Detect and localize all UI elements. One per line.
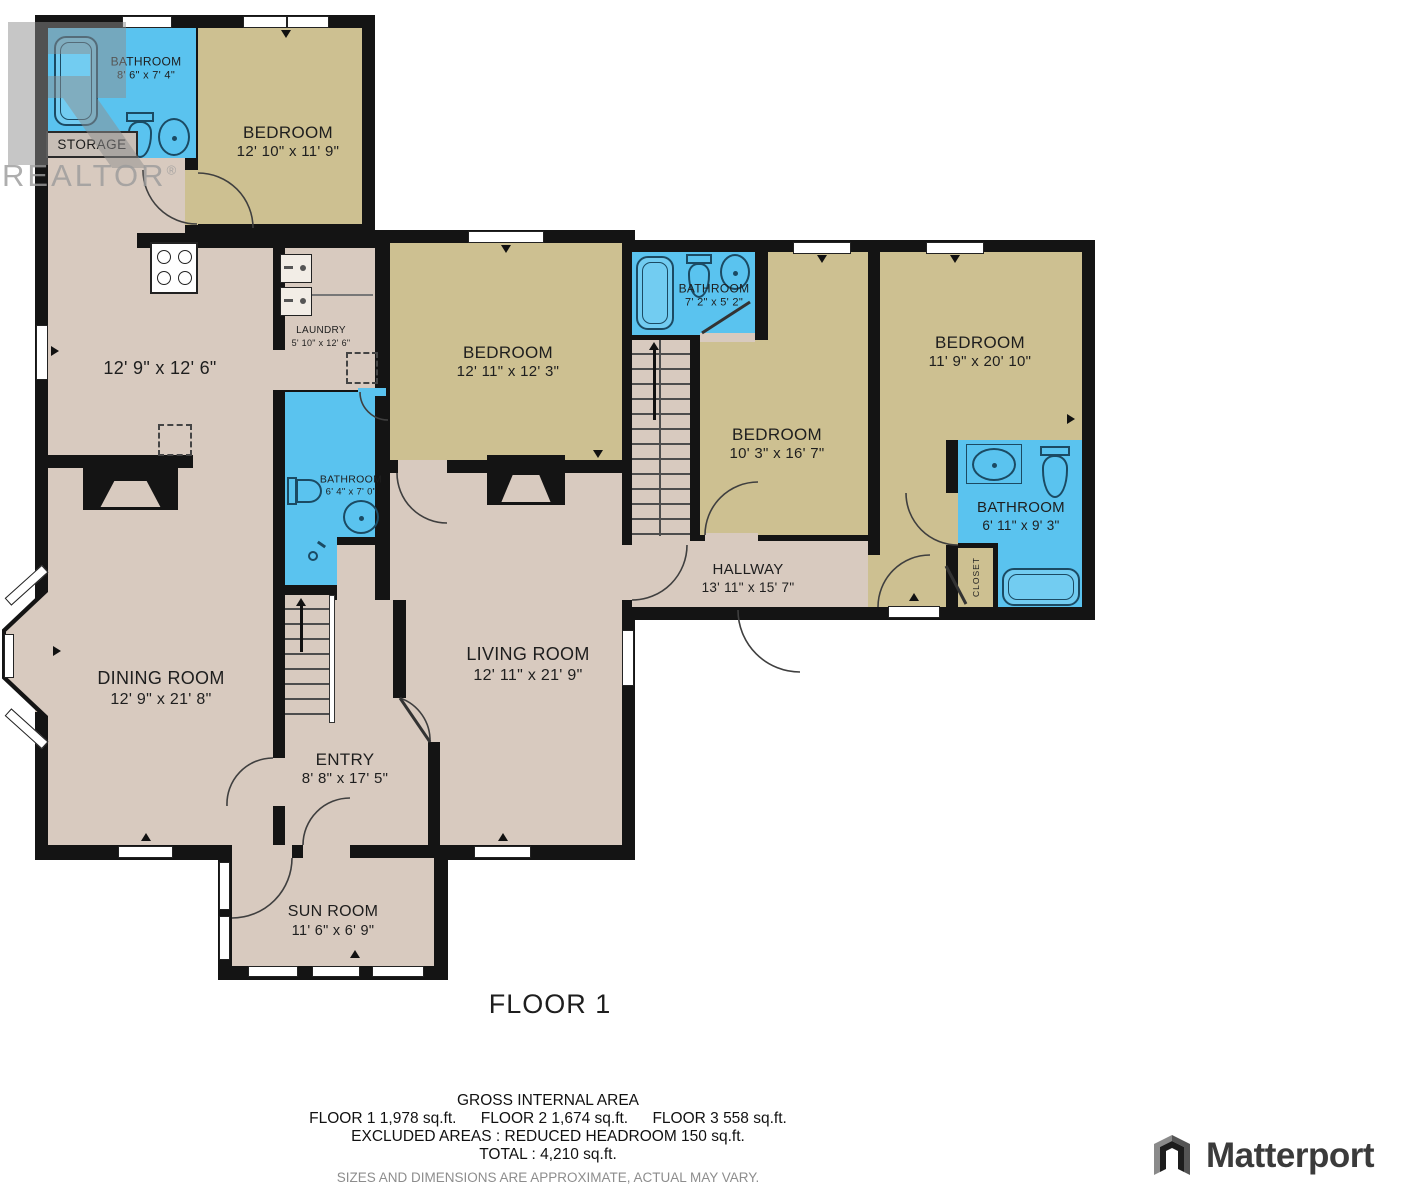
room-label-dining: DINING ROOM 12' 9" x 21' 8" — [97, 667, 224, 710]
room-label-bedroom-right: BEDROOM 11' 9" x 20' 10" — [929, 332, 1032, 372]
room-label-bathroom-middle: BATHROOM 6' 4" x 7' 0" — [320, 474, 382, 499]
room-label-kitchen: 12' 9" x 12' 6" — [103, 357, 216, 380]
area-summary: GROSS INTERNAL AREA FLOOR 1 1,978 sq.ft.… — [148, 1092, 948, 1187]
floor-plan-page: CLOSET — [0, 0, 1427, 1200]
room-label-entry: ENTRY 8' 8" x 17' 5" — [302, 749, 388, 789]
room-label-living: LIVING ROOM 12' 11" x 21' 9" — [466, 643, 589, 686]
room-label-bedroom-mid-right: BEDROOM 10' 3" x 16' 7" — [729, 424, 824, 464]
room-label-hallway: HALLWAY 13' 11" x 15' 7" — [702, 561, 795, 597]
room-label-bedroom-top-left: BEDROOM 12' 10" x 11' 9" — [237, 122, 340, 162]
room-label-laundry: LAUNDRY 5' 10" x 12' 6" — [292, 325, 351, 349]
storage-label: STORAGE — [57, 137, 126, 152]
marker-arrow-icon — [501, 245, 511, 253]
summary-floor1: FLOOR 1 1,978 sq.ft. — [309, 1110, 456, 1127]
summary-title: GROSS INTERNAL AREA — [148, 1092, 948, 1110]
room-label-bathroom-top-left: BATHROOM 8' 6" x 7' 4" — [111, 55, 182, 84]
marker-arrow-icon — [141, 833, 151, 841]
matterport-icon — [1148, 1132, 1196, 1180]
summary-excluded: EXCLUDED AREAS : REDUCED HEADROOM 150 sq… — [148, 1128, 948, 1146]
summary-total: TOTAL : 4,210 sq.ft. — [148, 1146, 948, 1164]
door-arc-layer — [0, 0, 1100, 990]
marker-arrow-icon — [909, 593, 919, 601]
matterport-logo: Matterport — [1148, 1132, 1374, 1180]
marker-arrow-icon — [51, 346, 59, 356]
storage-label-box: STORAGE — [46, 131, 138, 158]
room-label-bedroom-center: BEDROOM 12' 11" x 12' 3" — [457, 342, 560, 382]
summary-floors: FLOOR 1 1,978 sq.ft. FLOOR 2 1,674 sq.ft… — [148, 1110, 948, 1128]
marker-arrow-icon — [498, 833, 508, 841]
marker-arrow-icon — [350, 950, 360, 958]
summary-disclaimer: SIZES AND DIMENSIONS ARE APPROXIMATE, AC… — [148, 1169, 948, 1187]
room-label-sun-room: SUN ROOM 11' 6" x 6' 9" — [288, 902, 378, 940]
marker-arrow-icon — [817, 255, 827, 263]
summary-floor3: FLOOR 3 558 sq.ft. — [652, 1110, 786, 1127]
marker-arrow-icon — [53, 646, 61, 656]
matterport-wordmark: Matterport — [1206, 1136, 1374, 1176]
marker-arrow-icon — [1067, 414, 1075, 424]
marker-arrow-icon — [281, 30, 291, 38]
marker-arrow-icon — [950, 255, 960, 263]
room-label-bathroom-upper: BATHROOM 7' 2" x 5' 2" — [679, 282, 750, 311]
summary-floor2: FLOOR 2 1,674 sq.ft. — [481, 1110, 628, 1127]
marker-arrow-icon — [593, 450, 603, 458]
room-label-bathroom-right: BATHROOM 6' 11" x 9' 3" — [977, 499, 1065, 535]
floor-title: FLOOR 1 — [489, 988, 612, 1022]
